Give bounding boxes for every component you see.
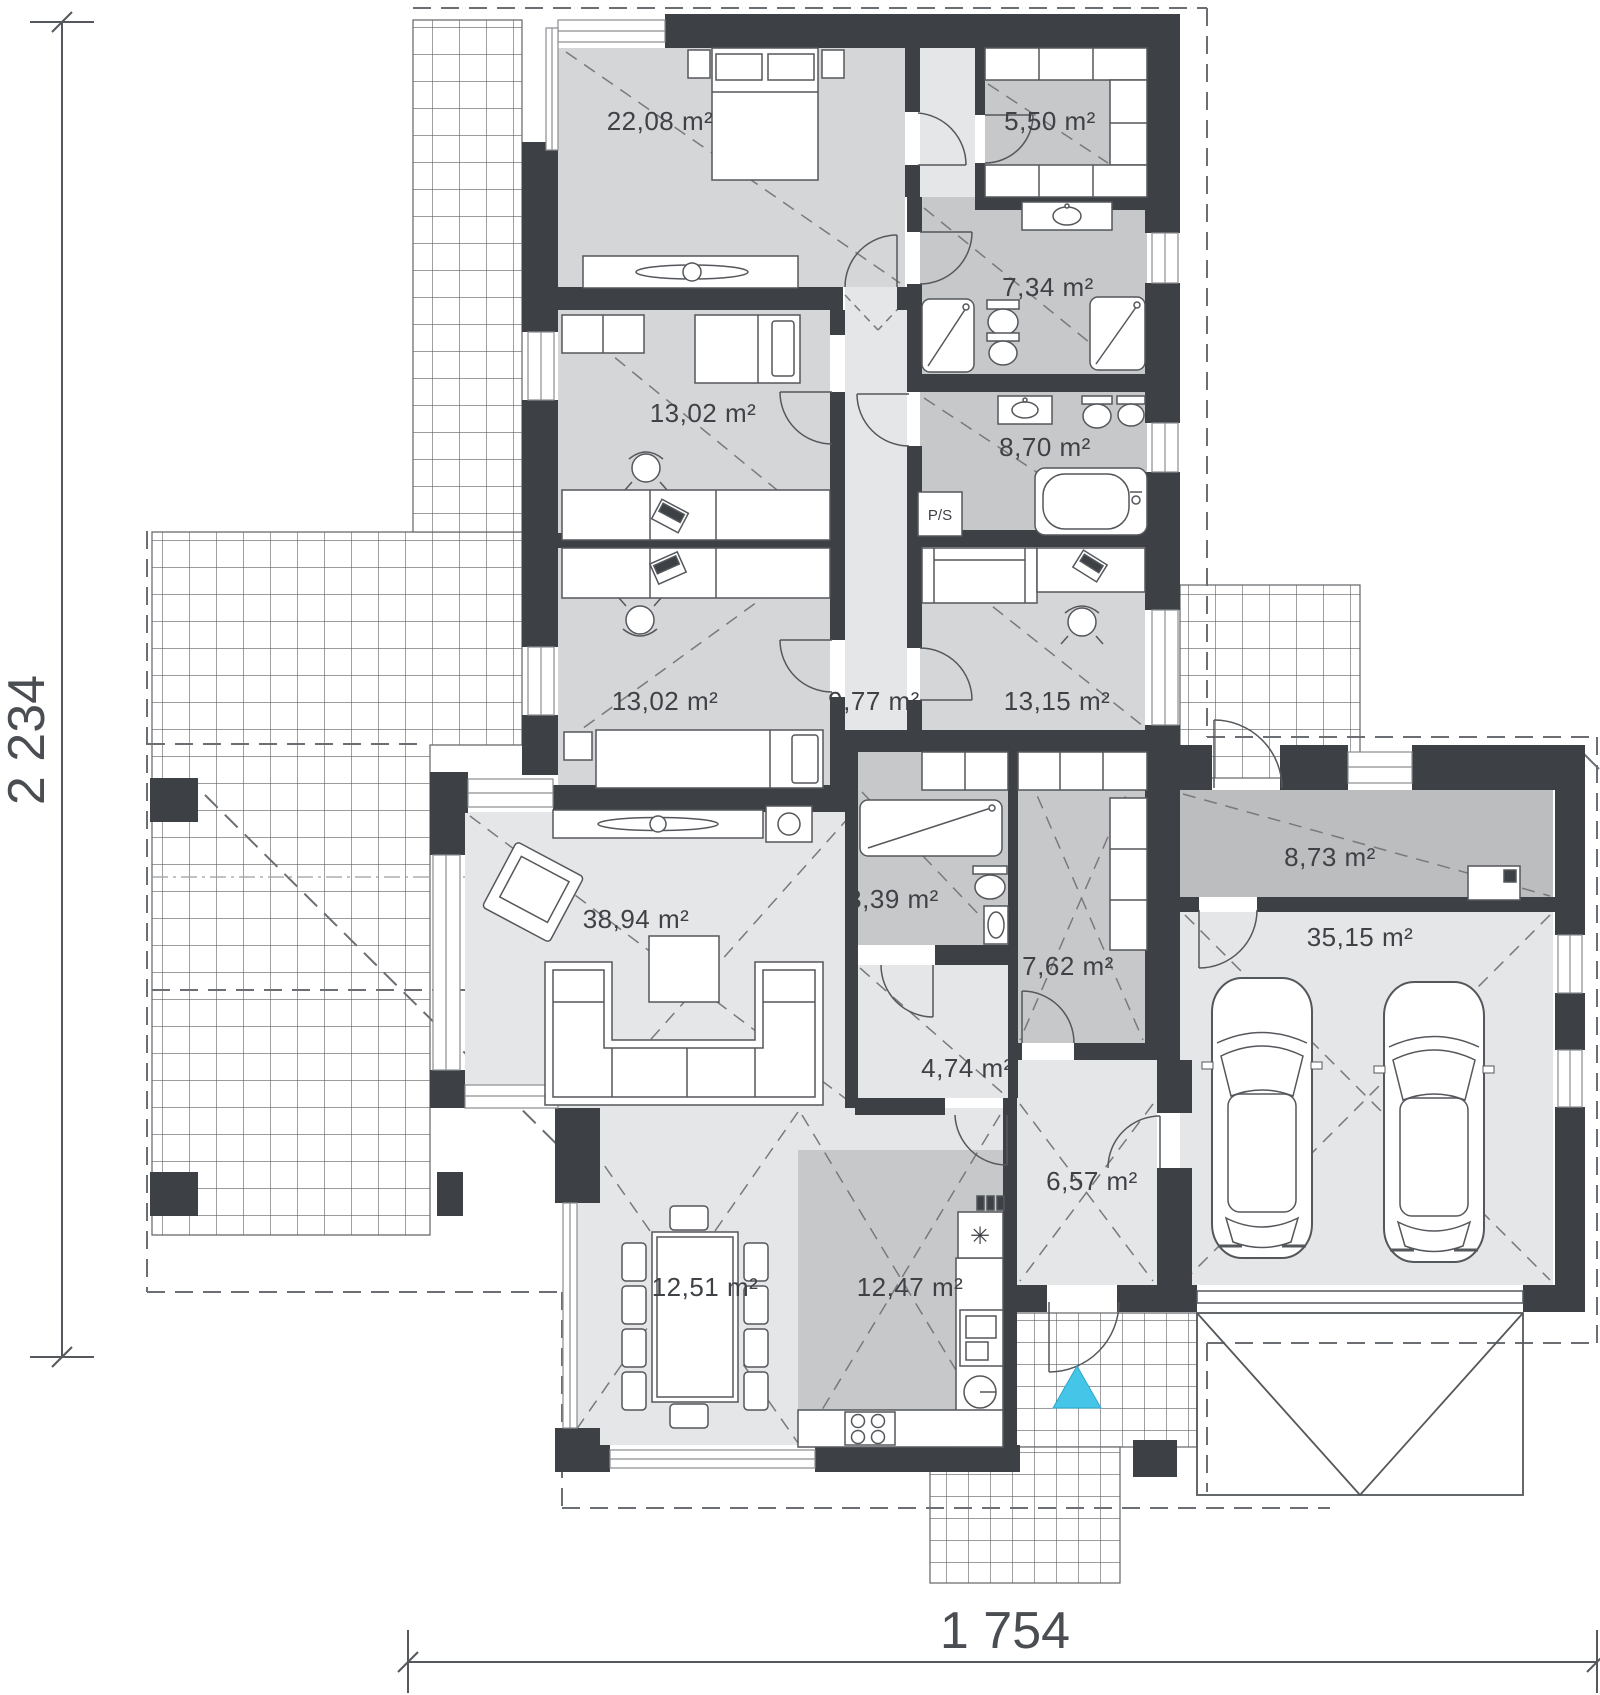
- porch-pillar: [1133, 1440, 1177, 1477]
- shower: [860, 800, 1002, 856]
- window: [528, 332, 554, 400]
- double-bed: [712, 48, 818, 180]
- car-icon: [1202, 978, 1322, 1258]
- floor-hallway: [845, 287, 907, 745]
- area-label-wc: 3,39 m²: [847, 884, 939, 914]
- area-label-kitchen: 12,47 m²: [857, 1272, 964, 1302]
- sofa-bed: [922, 548, 1037, 603]
- window: [465, 1085, 558, 1108]
- washbasin: [984, 906, 1008, 944]
- area-label-utility: 8,73 m²: [1284, 842, 1376, 872]
- floor-plan-page: 22,08 m² 5,50 m² 7,34 m² 8,70 m² 13,02 m…: [0, 0, 1600, 1695]
- area-label-bedroom-3: 13,15 m²: [1004, 686, 1111, 716]
- floor-plan-drawing: 22,08 m² 5,50 m² 7,34 m² 8,70 m² 13,02 m…: [0, 0, 1600, 1695]
- dimension-label-width: 1 754: [940, 1602, 1070, 1660]
- window: [1152, 423, 1178, 472]
- nightstand: [688, 50, 710, 78]
- coffee-table: [649, 936, 719, 1002]
- bidet: [987, 333, 1019, 365]
- washer-dryer-label: P/S: [928, 507, 952, 524]
- bidet: [1117, 396, 1145, 426]
- toilet: [1082, 396, 1112, 428]
- fridge-symbol-icon: ✳: [970, 1223, 990, 1250]
- window: [1558, 935, 1582, 993]
- area-label-bedroom-2: 13,02 m²: [612, 686, 719, 716]
- window: [546, 28, 558, 150]
- desk: [562, 490, 830, 540]
- area-label-garage: 35,15 m²: [1307, 922, 1414, 952]
- window: [558, 20, 665, 42]
- nightstand: [822, 50, 844, 78]
- bathtub: [1035, 468, 1147, 535]
- vent: [977, 1196, 984, 1210]
- vanity-sink: [998, 396, 1052, 424]
- shower: [1090, 297, 1145, 370]
- area-label-bedroom-1: 13,02 m²: [650, 398, 757, 428]
- side-terrace-strip: [413, 20, 522, 532]
- desk: [562, 548, 830, 598]
- window: [1152, 610, 1178, 725]
- dimension-label-height: 2 234: [0, 675, 56, 805]
- shower: [922, 299, 974, 372]
- area-label-bathroom-main: 7,34 m²: [1002, 272, 1094, 302]
- pergola-column: [150, 1172, 198, 1216]
- window: [1348, 752, 1412, 783]
- tv-sideboard: [553, 810, 763, 838]
- kitchen-sink: [964, 1376, 996, 1408]
- area-label-hallway: 9,77 m²: [828, 686, 920, 716]
- vanity-sink: [1022, 202, 1112, 230]
- driveway-canopy: [1197, 1313, 1523, 1495]
- nightstand: [564, 732, 592, 760]
- single-bed: [596, 730, 823, 788]
- pergola-column: [437, 1172, 463, 1216]
- window: [563, 1203, 577, 1428]
- dining-table: [652, 1232, 738, 1402]
- window: [433, 855, 460, 1070]
- area-label-pantry: 7,62 m²: [1022, 951, 1114, 981]
- window: [610, 1450, 815, 1468]
- floor-master-vestibule: [920, 48, 975, 197]
- car-icon: [1374, 982, 1494, 1262]
- window: [468, 779, 553, 807]
- area-label-dining: 12,51 m²: [652, 1272, 759, 1302]
- area-label-entry-hall: 6,57 m²: [1046, 1166, 1138, 1196]
- cabinet: [562, 315, 644, 353]
- side-table: [766, 806, 812, 842]
- single-bed: [695, 315, 800, 383]
- pergola-column: [150, 778, 198, 822]
- window: [528, 647, 554, 715]
- dresser: [583, 256, 798, 288]
- window: [1558, 1050, 1582, 1107]
- vent: [987, 1196, 994, 1210]
- area-label-living-room: 38,94 m²: [583, 904, 690, 934]
- area-label-corridor: 4,74 m²: [921, 1053, 1013, 1083]
- entrance-porch: [1012, 1313, 1197, 1447]
- area-label-bathroom-family: 8,70 m²: [999, 432, 1091, 462]
- oven: [960, 1310, 1003, 1366]
- garage-door: [1197, 1291, 1523, 1303]
- boiler: [1468, 866, 1520, 900]
- toilet: [987, 300, 1019, 335]
- area-label-closet: 5,50 m²: [1004, 106, 1096, 136]
- area-label-master-bedroom: 22,08 m²: [607, 106, 714, 136]
- toilet: [973, 866, 1007, 899]
- window: [1152, 233, 1178, 283]
- vent: [997, 1196, 1004, 1210]
